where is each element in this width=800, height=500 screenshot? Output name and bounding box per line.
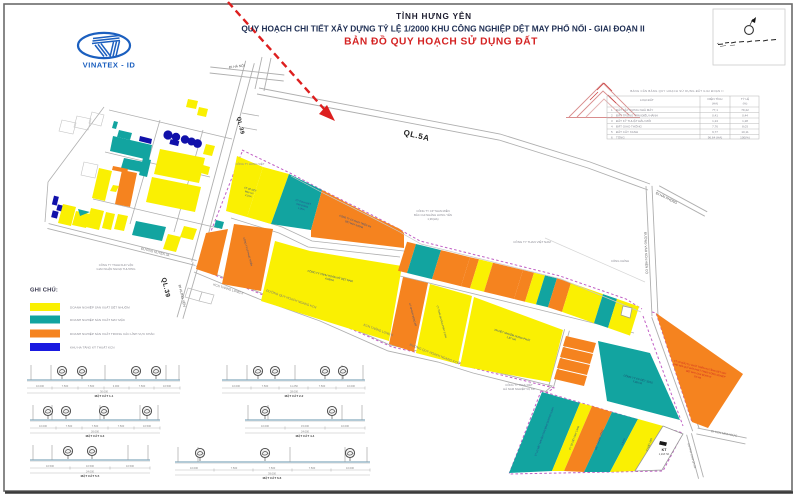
svg-text:96,64 (HA): 96,64 (HA) <box>708 136 723 140</box>
svg-text:10.500: 10.500 <box>143 424 151 428</box>
svg-text:7.500: 7.500 <box>88 384 95 388</box>
svg-text:26.000: 26.000 <box>91 430 99 434</box>
svg-text:DIỆN TÍCH: DIỆN TÍCH <box>708 96 723 101</box>
svg-text:QUY HOẠCH CHI TIẾT XÂY DỰNG TỶ: QUY HOẠCH CHI TIẾT XÂY DỰNG TỶ LỆ 1/2000… <box>241 23 644 34</box>
svg-text:77,1: 77,1 <box>712 108 718 112</box>
svg-text:ĐẤT XÂY DỰNG NHÀ MÁY: ĐẤT XÂY DỰNG NHÀ MÁY <box>616 107 653 112</box>
svg-text:TỈNH HƯNG YÊN: TỈNH HƯNG YÊN <box>396 10 472 21</box>
svg-text:10.000: 10.000 <box>190 466 198 470</box>
svg-text:10.000: 10.000 <box>347 384 355 388</box>
svg-text:10.500: 10.500 <box>163 384 171 388</box>
svg-text:3.000: 3.000 <box>113 384 120 388</box>
svg-text:BẢNG CÂN BẰNG QUY HOẠCH SỬ DỤN: BẢNG CÂN BẰNG QUY HOẠCH SỬ DỤNG ĐẤT GIAI… <box>630 88 723 93</box>
svg-text:7.500: 7.500 <box>231 466 238 470</box>
svg-text:30.000: 30.000 <box>100 390 108 394</box>
svg-text:9,77: 9,77 <box>712 130 718 134</box>
svg-text:10.000: 10.000 <box>341 424 349 428</box>
svg-text:TỔNG: TỔNG <box>616 135 625 140</box>
svg-text:LOẠI ĐẤT: LOẠI ĐẤT <box>640 97 654 102</box>
svg-text:GHI CHÚ:: GHI CHÚ: <box>30 287 58 294</box>
svg-text:DOANH NGHIỆP SẢN XUẤT DỆT NHUỘ: DOANH NGHIỆP SẢN XUẤT DỆT NHUỘM <box>70 305 130 310</box>
svg-text:11.250: 11.250 <box>290 384 298 388</box>
svg-text:24.000: 24.000 <box>301 430 309 434</box>
svg-text:(HA): (HA) <box>712 102 718 106</box>
svg-text:TỶ LỆ: TỶ LỆ <box>741 96 749 101</box>
svg-text:24.000: 24.000 <box>86 470 94 474</box>
svg-text:0,44: 0,44 <box>742 114 748 118</box>
svg-text:10.000: 10.000 <box>346 466 354 470</box>
svg-text:ĐẤT KỸ THUẬT ĐẦU MỐI: ĐẤT KỸ THUẬT ĐẦU MỐI <box>616 118 651 123</box>
svg-text:7.500: 7.500 <box>118 424 125 428</box>
svg-text:1,24: 1,24 <box>712 119 718 123</box>
svg-text:ĐẤT GIAO THÔNG: ĐẤT GIAO THÔNG <box>616 124 643 129</box>
svg-text:7.500: 7.500 <box>66 424 73 428</box>
svg-text:VINATEX - ID: VINATEX - ID <box>83 61 136 70</box>
svg-text:HÀ NAM NGHIỆP VỤ KD: HÀ NAM NGHIỆP VỤ KD <box>503 386 535 391</box>
svg-text:15.000: 15.000 <box>301 424 309 428</box>
svg-text:100(%): 100(%) <box>740 136 750 140</box>
svg-text:7.500: 7.500 <box>309 466 316 470</box>
svg-text:MẶT CẮT 2-2: MẶT CẮT 2-2 <box>285 393 304 398</box>
svg-text:79,42: 79,42 <box>741 108 749 112</box>
svg-text:7.500: 7.500 <box>319 384 326 388</box>
svg-text:10.000: 10.000 <box>36 384 44 388</box>
svg-text:(%): (%) <box>743 102 748 106</box>
svg-text:7.500: 7.500 <box>92 424 99 428</box>
svg-text:1,96(HA): 1,96(HA) <box>427 217 438 221</box>
svg-text:BẢN ĐỒ QUY HOẠCH SỬ DỤNG ĐẤT: BẢN ĐỒ QUY HOẠCH SỬ DỤNG ĐẤT <box>344 35 538 48</box>
svg-text:MẶT CẮT 4-4: MẶT CẮT 4-4 <box>296 433 315 438</box>
svg-text:7.500: 7.500 <box>62 384 69 388</box>
svg-text:0,41: 0,41 <box>712 114 718 118</box>
svg-text:MẶT CẮT 5-5: MẶT CẮT 5-5 <box>81 473 100 478</box>
svg-text:7.500: 7.500 <box>269 466 276 470</box>
svg-text:10.000: 10.000 <box>232 384 240 388</box>
svg-text:10.500: 10.500 <box>126 464 134 468</box>
svg-text:DOANH NGHIỆP SẢN XUẤT MAY MẶC: DOANH NGHIỆP SẢN XUẤT MAY MẶC <box>70 317 126 322</box>
svg-text:MẶT CẮT 1-1: MẶT CẮT 1-1 <box>95 393 114 398</box>
svg-text:10.000: 10.000 <box>39 424 47 428</box>
svg-text:CÔNG TY THAN VIỆT NAM: CÔNG TY THAN VIỆT NAM <box>513 239 551 244</box>
svg-text:MẶT CẮT 6-6: MẶT CẮT 6-6 <box>263 475 282 480</box>
svg-text:CÔNG TY HƯNG VIỆT: CÔNG TY HƯNG VIỆT <box>235 161 264 166</box>
svg-text:DOANH NGHIỆP SẢN XUẤT TRONG CÁ: DOANH NGHIỆP SẢN XUẤT TRONG CÁC LĨNH VỰC… <box>70 331 155 336</box>
svg-text:ĐẤT CÂY XANH: ĐẤT CÂY XANH <box>616 129 638 134</box>
svg-text:39.000: 39.000 <box>268 472 276 476</box>
svg-text:10,11: 10,11 <box>741 130 749 134</box>
svg-text:10.500: 10.500 <box>86 464 94 468</box>
svg-text:KT: KT <box>662 448 668 452</box>
svg-text:1,28: 1,28 <box>742 119 748 123</box>
svg-text:MẶT CẮT 3-3: MẶT CẮT 3-3 <box>86 433 105 438</box>
svg-text:ĐẤT TRUNG TÂM ĐIỀU HÀNH: ĐẤT TRUNG TÂM ĐIỀU HÀNH <box>616 113 658 118</box>
svg-text:KHU HẠ TẦNG KỸ THUẬT KCN: KHU HẠ TẦNG KỸ THUẬT KCN <box>70 345 115 350</box>
svg-text:8,03: 8,03 <box>742 125 748 129</box>
svg-text:10.500: 10.500 <box>46 464 54 468</box>
svg-text:7.500: 7.500 <box>262 384 269 388</box>
svg-text:28.000: 28.000 <box>290 390 298 394</box>
svg-text:CỔNG CHÍNH: CỔNG CHÍNH <box>611 258 629 263</box>
svg-text:1,218 HA: 1,218 HA <box>659 453 670 456</box>
svg-text:10.000: 10.000 <box>261 424 269 428</box>
svg-text:GIAO NHẬN NGOẠI THƯƠNG: GIAO NHẬN NGOẠI THƯƠNG <box>97 266 136 271</box>
svg-text:7.500: 7.500 <box>139 384 146 388</box>
svg-text:7,76: 7,76 <box>712 125 718 129</box>
